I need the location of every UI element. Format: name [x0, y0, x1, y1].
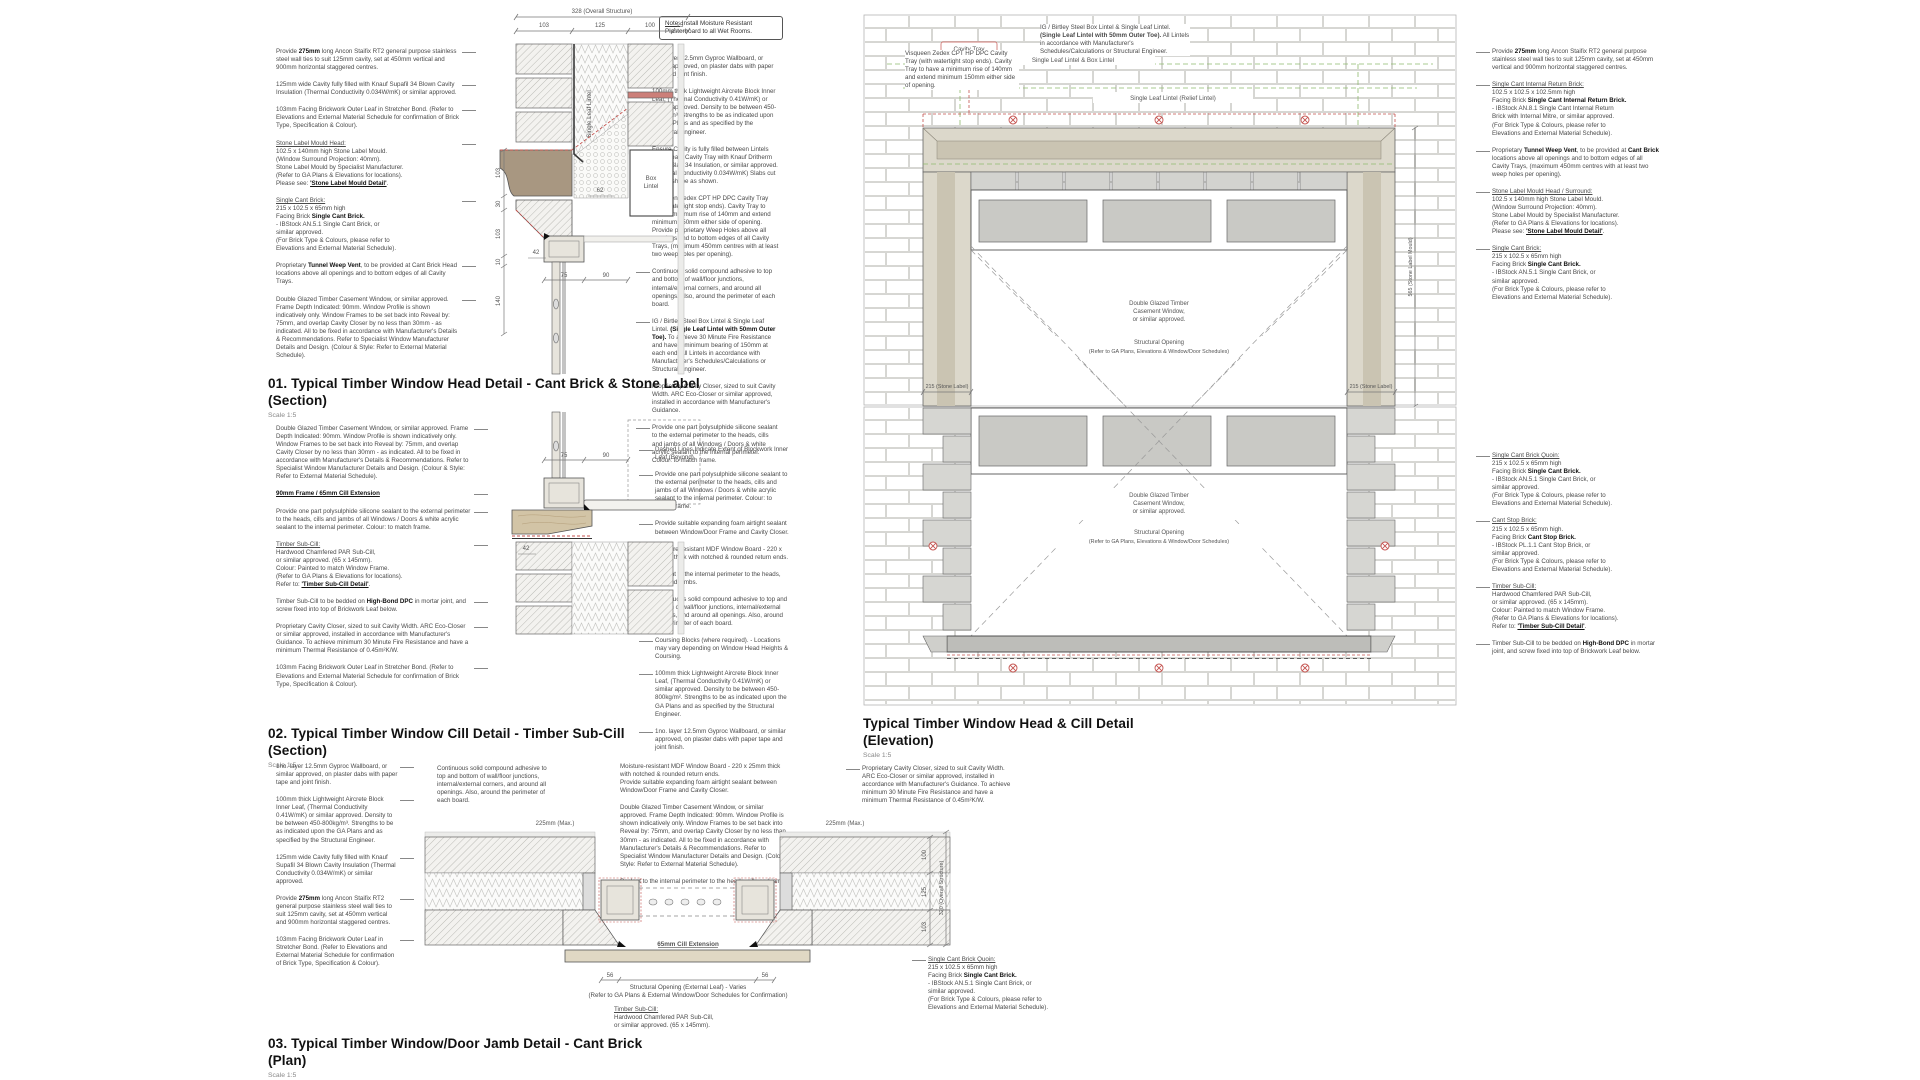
detail03-scale: Scale 1:5 [268, 1072, 688, 1079]
svg-text:75: 75 [561, 273, 568, 279]
svg-text:215 (Stone Label): 215 (Stone Label) [1350, 384, 1393, 390]
svg-text:42: 42 [533, 250, 540, 256]
lintel-a-label: Single Leaf Lintel & Box Lintel [1032, 57, 1114, 64]
annotation-note: Proprietary Tunnel Weep Vent, to be prov… [276, 262, 460, 286]
cavity-insulation [572, 542, 628, 634]
detail01-left-notes: Provide 275mm long Ancon Staifix RT2 gen… [276, 48, 460, 369]
svg-text:225mm (Max.): 225mm (Max.) [536, 821, 575, 827]
svg-text:(Refer to GA Plans, Elevations: (Refer to GA Plans, Elevations & Window/… [1089, 539, 1229, 545]
annotation-note: Proprietary Tunnel Weep Vent, to be prov… [1492, 147, 1660, 179]
detail03-left-notes: 1no. layer 12.5mm Gyproc Wallboard, or s… [276, 763, 398, 977]
svg-text:90: 90 [603, 453, 610, 459]
box-lintel-label2: Lintel [644, 183, 659, 190]
svg-text:or similar approved.: or similar approved. [1133, 317, 1186, 323]
mdf-window-board [584, 500, 676, 510]
detail03-title-line2: (Plan) [268, 1053, 688, 1070]
annotation-note: Single Cant Brick Quoin:215 x 102.5 x 65… [1492, 452, 1660, 508]
dim-segments: 103 125 100 25 [514, 23, 690, 34]
annotation-note: Stone Label Mould Head:102.5 x 140mm hig… [276, 140, 460, 188]
cant-brick-row [971, 172, 1347, 190]
annotation-note: Double Glazed Timber Casement Window, or… [276, 296, 460, 361]
window-head [971, 190, 1347, 250]
detail02-section-drawing: 75 90 42 [452, 412, 728, 722]
svg-text:Double Glazed Timber: Double Glazed Timber [1129, 301, 1189, 307]
drawing-sheet: Note: Install Moisture Resistant Plaster… [0, 0, 1920, 1080]
detail02-title-line2: (Section) [268, 743, 688, 760]
inner-block-leaf [628, 44, 673, 146]
elevation-right-notes-cill: Single Cant Brick Quoin:215 x 102.5 x 65… [1492, 452, 1660, 665]
left-wall [425, 832, 619, 945]
svg-text:Structural Opening: Structural Opening [1134, 530, 1184, 536]
annotation-note: 103mm Facing Brickwork Outer Leaf in Str… [276, 106, 460, 130]
single-leaf-lintel-label: Single Leaf Lintel [586, 90, 593, 137]
blockwork-beyond-dashed [628, 420, 700, 504]
dim-structural-opening [599, 977, 776, 983]
annotation-note: 90mm Frame / 65mm Cill Extension [276, 490, 472, 498]
detail01-section-drawing: 328 (Overall Structure) 103 125 100 25 [452, 4, 728, 376]
inner-block-leaf [628, 542, 673, 634]
svg-text:103: 103 [922, 921, 928, 932]
lintel-b-label: Single Leaf Lintel (Relief Lintel) [1130, 95, 1216, 102]
timber-sub-cill-elevation [923, 636, 1395, 659]
svg-text:or similar approved.: or similar approved. [1133, 509, 1186, 515]
right-wall [756, 832, 950, 945]
annotation-note: Single Cant Internal Return Brick:102.5 … [1492, 81, 1660, 137]
plasterboard [678, 542, 684, 634]
detail03-subcill-note: Timber Sub-Cill:Hardwood Chamfered PAR S… [614, 1006, 774, 1030]
svg-text:90: 90 [603, 273, 610, 279]
detail03-title: 03. Typical Timber Window/Door Jamb Deta… [268, 1036, 688, 1079]
svg-text:56: 56 [607, 973, 614, 979]
svg-text:320 (Overall Structure): 320 (Overall Structure) [939, 861, 945, 916]
outer-brick-leaf [516, 44, 572, 142]
outer-brick-leaf [516, 542, 572, 634]
svg-text:30: 30 [496, 200, 502, 207]
svg-text:100: 100 [922, 849, 928, 860]
svg-text:42: 42 [523, 546, 530, 552]
annotation-note: Timber Sub-Cill to be bedded on High-Bon… [1492, 640, 1660, 656]
elevation-title: Typical Timber Window Head & Cill Detail… [863, 716, 1283, 759]
svg-text:140: 140 [496, 295, 502, 306]
annotation-note: Stone Label Mould Head / Surround:102.5 … [1492, 188, 1660, 236]
svg-text:125: 125 [595, 23, 606, 29]
detail01-title-line2: (Section) [268, 393, 728, 410]
svg-text:Double Glazed Timber: Double Glazed Timber [1129, 493, 1189, 499]
elevation-title-line2: (Elevation) [863, 733, 1283, 750]
svg-text:Casement Window,: Casement Window, [1133, 501, 1185, 507]
elevation-scale: Scale 1:5 [863, 752, 1283, 759]
dim-overall: 328 (Overall Structure) [514, 9, 690, 20]
annotation-note: Single Cant Brick:215 x 102.5 x 65mm hig… [276, 197, 460, 253]
annotation-note: 125mm wide Cavity fully filled with Knau… [276, 854, 398, 886]
annotation-note: Cant Stop Brick:215 x 102.5 x 65mm high.… [1492, 517, 1660, 573]
window-frame-right-jamb [734, 878, 776, 922]
annotation-note: Timber Sub-Cill:Hardwood Chamfered PAR S… [1492, 583, 1660, 631]
annotation-note: 1no. layer 12.5mm Gyproc Wallboard, or s… [276, 763, 398, 787]
svg-text:215 (Stone Label): 215 (Stone Label) [926, 384, 969, 390]
svg-text:56: 56 [762, 973, 769, 979]
svg-text:125: 125 [922, 886, 928, 897]
svg-text:Casement Window,: Casement Window, [1133, 309, 1185, 315]
annotation-note: Single Cant Brick:215 x 102.5 x 65mm hig… [1492, 245, 1660, 301]
svg-text:10: 10 [496, 258, 502, 265]
box-lintel-label: Box [646, 175, 658, 182]
window-frame-left-jamb [599, 878, 641, 922]
reveal-soffit [584, 236, 673, 242]
window-continuation [639, 888, 736, 916]
detail03-title-line1: 03. Typical Timber Window/Door Jamb Deta… [268, 1036, 688, 1053]
svg-text:565 (Stone Label Mould): 565 (Stone Label Mould) [1408, 237, 1414, 296]
timber-sub-cill [512, 510, 592, 534]
svg-text:328 (Overall Structure): 328 (Overall Structure) [572, 9, 633, 15]
svg-text:25: 25 [677, 23, 684, 29]
svg-text:103: 103 [496, 167, 502, 178]
detail02-left-notes: Double Glazed Timber Casement Window, or… [276, 425, 472, 698]
annotation-note: Provide 275mm long Ancon Staifix RT2 gen… [1492, 48, 1660, 72]
elevation-lintel-note: IG / Birtley Steel Box Lintel & Single L… [1040, 24, 1190, 56]
annotation-note: 103mm Facing Brickwork Outer Leaf in Str… [276, 936, 398, 968]
annotation-note: Double Glazed Timber Casement Window, or… [276, 425, 472, 481]
annotation-note: Timber Sub-Cill to be bedded on High-Bon… [276, 598, 472, 614]
head-center-text: Double Glazed Timber Casement Window, or… [1023, 296, 1295, 358]
elevation-cill-drawing: Double Glazed Timber Casement Window, or… [863, 406, 1457, 706]
detail03-plan-drawing: 65mm Cill Extension 56 56 225mm (Max.) 2… [415, 788, 960, 1003]
plasterboard [678, 44, 684, 374]
svg-text:100: 100 [645, 23, 656, 29]
svg-text:103: 103 [539, 23, 550, 29]
svg-text:Structural Opening: Structural Opening [1134, 340, 1184, 346]
elevation-visqueen-note: Visqueen Zedex CPT HP DPC Cavity Tray (w… [905, 50, 1019, 90]
annotation-note: Proprietary Cavity Closer, sized to suit… [276, 623, 472, 655]
window-frame [544, 236, 584, 374]
annotation-note: 125mm wide Cavity fully filled with Knau… [276, 81, 460, 97]
detail02-title-line1: 02. Typical Timber Window Cill Detail - … [268, 726, 688, 743]
elevation-right-notes-head: Provide 275mm long Ancon Staifix RT2 gen… [1492, 48, 1660, 311]
annotation-note: 100mm thick Lightweight Aircrete Block I… [276, 796, 398, 844]
detail01-title-line1: 01. Typical Timber Window Head Detail - … [268, 376, 728, 393]
cill-center-text: Double Glazed Timber Casement Window, or… [1023, 488, 1295, 548]
stone-label-mould [500, 150, 572, 196]
annotation-note: Provide one part polysulphide silicone s… [276, 508, 472, 532]
svg-text:225mm (Max.): 225mm (Max.) [826, 821, 865, 827]
annotation-note: 103mm Facing Brickwork Outer Leaf in Str… [276, 664, 472, 688]
annotation-note: Timber Sub-Cill:Hardwood Chamfered PAR S… [276, 541, 472, 589]
svg-text:75: 75 [561, 453, 568, 459]
cill-extension-label: 65mm Cill Extension [657, 941, 719, 948]
svg-text:(Refer to GA Plans, Elevations: (Refer to GA Plans, Elevations & Window/… [1089, 349, 1229, 355]
elevation-title-line1: Typical Timber Window Head & Cill Detail [863, 716, 1283, 733]
annotation-note: Provide 275mm long Ancon Staifix RT2 gen… [276, 48, 460, 72]
sealant-left [617, 941, 626, 947]
sealant-right [749, 941, 758, 947]
svg-text:103: 103 [496, 228, 502, 239]
cill-extension-bar [565, 950, 810, 962]
svg-text:62: 62 [597, 188, 604, 194]
annotation-note: Provide 275mm long Ancon Staifix RT2 gen… [276, 895, 398, 927]
